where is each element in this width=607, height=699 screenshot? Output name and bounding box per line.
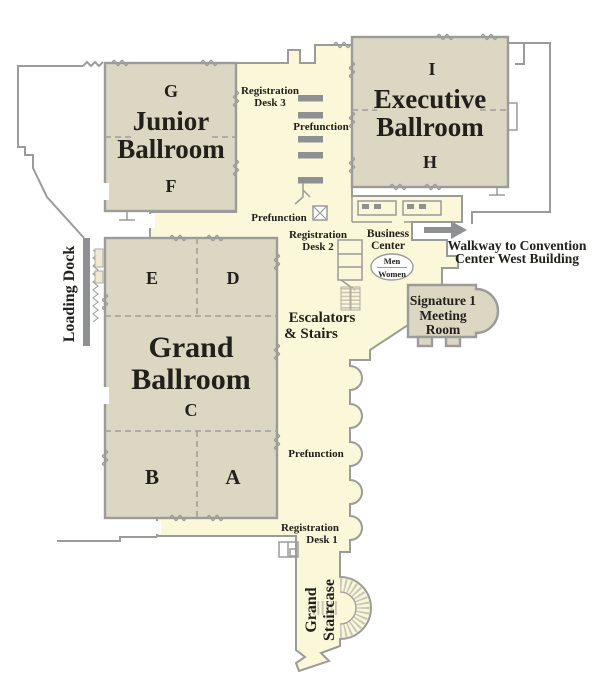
floor-plan: G Junior Ballroom F I Executive Ballroom… [0,0,607,699]
loading-dock-door [95,271,103,283]
section-letter-h: H [423,152,437,172]
junior-ballroom-name-1: Junior [133,106,210,136]
desk-equipment [374,204,381,209]
mens-womens-sign: Men Women [371,254,413,280]
outline-northwest-doorway-squiggle [83,62,103,66]
outline-northwest [18,66,84,238]
registration-desk-bar [298,136,323,143]
signature-room-label-1: Signature 1 [410,293,476,308]
registration-desk-bar [298,177,323,184]
signature-room-tab-right [446,337,460,346]
floor-plan-svg: G Junior Ballroom F I Executive Ballroom… [0,0,607,699]
section-letter-c: C [185,400,198,420]
registration-desk-3-label-2: Desk 3 [254,97,286,109]
door-opening [101,387,109,404]
loading-dock-label: Loading Dock [61,246,78,343]
section-letter-f: F [166,176,177,196]
walkway-label-2: Center West Building [455,251,579,266]
prefunction-lower-label: Prefunction [288,448,343,460]
junior-ballroom-name-2: Ballroom [117,134,225,164]
section-letter-i: I [428,59,435,79]
desk-equipment [407,204,414,209]
section-letter-e: E [146,268,158,288]
grand-staircase-label-2: Staircase [321,579,338,641]
registration-desk-bar [298,152,323,159]
registration-desk-3-label-1: Registration [241,85,299,97]
restroom-women-label: Women [378,269,406,279]
business-center-label-1: Business [367,228,410,240]
escalators-label-2: & Stairs [284,326,338,342]
signature-room-tab-left [418,337,432,346]
outline-southwest [57,537,157,541]
executive-ballroom-name-1: Executive [374,84,486,114]
loading-dock-door [95,249,103,267]
grand-ballroom-name-2: Ballroom [131,363,250,396]
registration-desk-bar [298,95,323,102]
desk-equipment [362,204,369,209]
prefunction-top-label: Prefunction [293,121,348,133]
door-opening [146,214,155,228]
door-opening [101,183,109,200]
east-wall-pilaster [508,103,517,130]
escalators-label-1: Escalators [289,310,356,326]
wall-anchor-mark [119,212,135,220]
registration-desk-1-label-2: Desk 1 [306,534,337,546]
loading-dock-platform [83,238,90,346]
grand-ballroom-name-1: Grand [148,331,233,364]
section-letter-g: G [164,81,178,101]
walkway-arrow-icon [424,221,467,239]
signature-room-label-3: Room [426,322,461,337]
door-opening [152,521,161,534]
registration-desk-2-label-1: Registration [289,229,347,241]
desk-equipment [419,204,426,209]
signature-room-label-2: Meeting [419,308,466,323]
registration-desk-bar [298,112,323,119]
executive-ballroom-name-2: Ballroom [376,112,484,142]
registration-desk-2-label-2: Desk 2 [302,241,334,253]
grand-staircase-label-1: Grand [303,587,320,632]
business-center-label-2: Center [371,240,405,252]
registration-desk-1-label-1: Registration [281,522,339,534]
restroom-men-label: Men [384,256,401,266]
section-letter-b: B [145,465,159,489]
outline-east-steps [508,43,524,64]
prefunction-mid-label: Prefunction [251,212,306,224]
section-letter-a: A [225,465,241,489]
section-letter-d: D [227,268,240,288]
